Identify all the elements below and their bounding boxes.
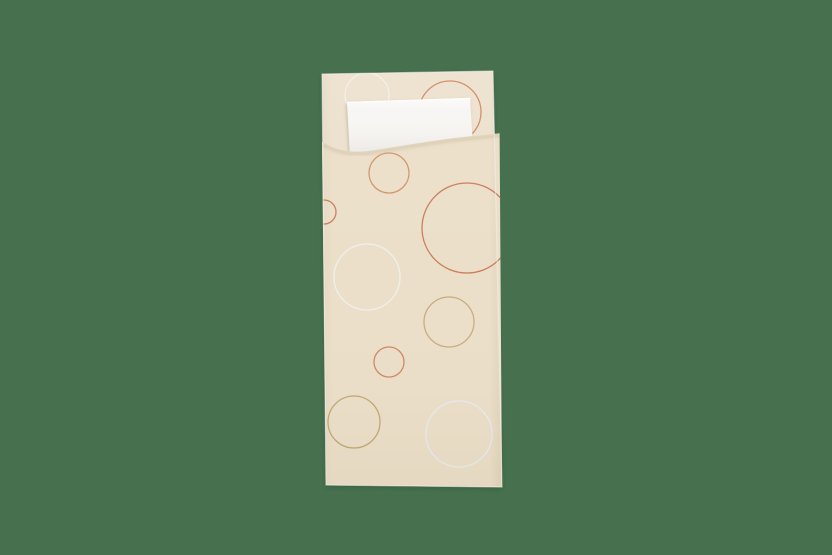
cutlery-pouch: [312, 71, 512, 487]
cutlery-pouch-illustration: [0, 0, 832, 555]
pouch-side-shading: [322, 71, 502, 487]
product-photo: [0, 0, 832, 555]
